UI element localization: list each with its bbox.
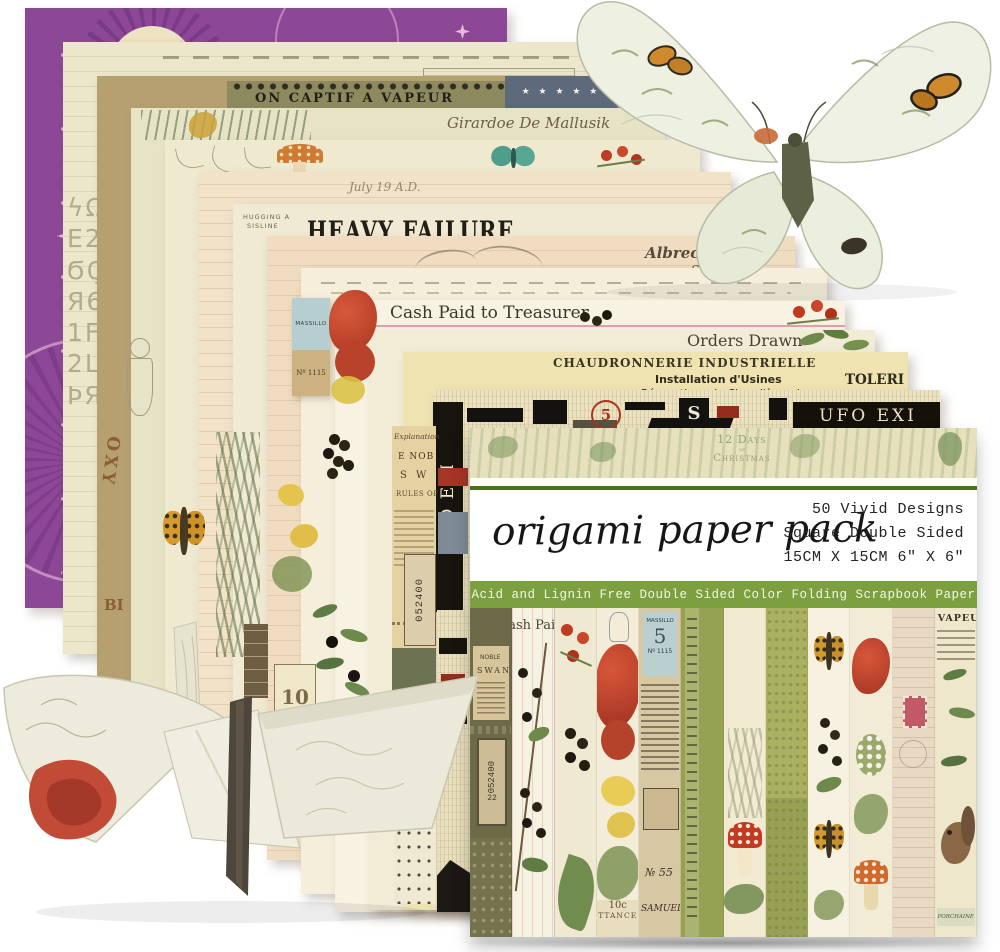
hugging-text-2: SISLINE [247, 222, 279, 230]
cover-strip-green-ledger [681, 608, 723, 937]
moth-icon [814, 820, 846, 868]
samuel-text: SAMUEL [641, 904, 681, 914]
ufo-exi-banner: UFO EXI [793, 402, 940, 429]
origami-crane [0, 610, 480, 926]
nob-text: E NOB [398, 452, 434, 462]
explanation-text: Explanation [394, 432, 439, 441]
cash-top-text: Cash Paid to Treasurer [512, 618, 554, 633]
porchaine-label: PORCHAINE [937, 908, 975, 926]
sw-text: S W [400, 470, 429, 481]
ten-cent-text: 10c [597, 900, 639, 911]
pack-specs: 50 Vivid Designs Square Double Sided 15C… [738, 498, 964, 570]
no1115-text: Nº 1115 [296, 369, 325, 377]
spec-line-3: 15CM X 15CM 6" X 6" [738, 546, 964, 570]
cover-strip-poppy-hydrangea [850, 608, 892, 937]
ufo-exi-text: UFO EXI [819, 406, 917, 426]
swan-text: SWAN [477, 666, 511, 675]
red-five-stamp: 5 [591, 400, 621, 430]
origami-butterfly [552, 0, 1000, 302]
shoe-sketch-icon [244, 145, 271, 170]
s-block: S [679, 398, 709, 428]
blackberry-dots [580, 312, 590, 322]
cover-strip-toadstool-script [724, 608, 766, 937]
shoe-sketch-icon [175, 144, 204, 172]
red-poppy-motif [327, 290, 379, 406]
chaudronnerie-text: CHAUDRONNERIE INDUSTRIELLE [553, 356, 816, 370]
origami-pack-cover: 12 Days of Christmas origami paper pack … [470, 428, 977, 937]
cover-strip-vapeur-squirrel: VAPEU PORCHAINE [935, 608, 977, 937]
pear-motif [938, 432, 962, 466]
strip-no1115-text: Nº 1115 [643, 648, 677, 655]
noble-text: NOBLE [480, 654, 500, 661]
leaf-motif [590, 442, 616, 462]
ttance-text: TTANCE [597, 911, 639, 920]
hugging-text-1: HUGGING A [243, 213, 290, 221]
chain-pattern [231, 82, 551, 91]
postmark-icon [899, 740, 927, 768]
bell-sketch-icon [120, 338, 162, 448]
pine-sprigs [141, 110, 311, 140]
moth-icon [163, 505, 205, 569]
strip-ticket-22: 22 [487, 794, 497, 803]
red-newsprint-block [438, 468, 468, 486]
teal-butterfly-icon [491, 144, 539, 172]
vapeu-text: VAPEU [938, 613, 977, 624]
cover-strip-rosehips [555, 608, 597, 937]
spec-line-2: Square Double Sided [738, 522, 964, 546]
cover-strip-poppy-script: 10c TTANCE [597, 608, 639, 937]
cover-strip-moss [766, 608, 808, 937]
product-photo-scene: ϟΩ26ЦΕ2Ϻ ϬϚϠЯ612 1Ϝ62ЦЏ ϷЯϏ ON CAPTIF A … [0, 0, 1000, 952]
massillo-text: MASSILLO [295, 321, 326, 327]
pack-banner: Acid and Lignin Free Double Sided Color … [470, 581, 977, 608]
pack-shadow [455, 936, 995, 950]
yellow-flowers-motif [272, 476, 320, 598]
red-five-text: 5 [601, 406, 611, 424]
headline-block [533, 400, 567, 424]
postage-stamp-icon [903, 696, 927, 728]
strip-ticket: 052400 22 [477, 738, 507, 826]
cover-strip-stamp-script [893, 608, 935, 937]
blue-newsprint-block [438, 512, 468, 554]
label-gap [470, 478, 977, 486]
moth-icon [814, 632, 846, 680]
rosehip-sprig-icon [787, 300, 841, 330]
cover-strip-berry-ledger: Cash Paid to Treasurer [512, 608, 554, 937]
pink-rule [335, 325, 845, 327]
toadstool-icon [854, 860, 888, 918]
pack-label: origami paper pack 50 Vivid Designs Squa… [470, 490, 977, 578]
spec-line-1: 50 Vivid Designs [738, 498, 964, 522]
orders-text: Orders Drawn [687, 331, 802, 350]
strip-ticket-number: 052400 [487, 761, 497, 793]
headline-block [769, 398, 787, 420]
headline-block [625, 402, 665, 410]
handwriting-squiggle [163, 56, 583, 59]
cover-strip-massillon: MASSILLO 5 Nº 1115 № 55 SAMUEL [639, 608, 681, 937]
installation-text: Installation d'Usines [655, 373, 782, 386]
strip-massillo-text: MASSILLO [643, 612, 677, 624]
blue-massillon-label: MASSILLO Nº 1115 [292, 298, 330, 396]
banner-text: Acid and Lignin Free Double Sided Color … [471, 588, 975, 602]
toleri-text: TOLERI [845, 372, 904, 388]
cover-strips: NOBLE SWAN 052400 22 Cash Paid to Treasu… [470, 608, 977, 937]
rs55-text: № 55 [645, 866, 673, 879]
porchaine-text: PORCHAINE [938, 914, 974, 920]
cash-paid-text: Cash Paid to Treasurer [390, 303, 589, 323]
squirrel-motif [937, 804, 975, 876]
rules-text: RULES OF [396, 490, 439, 498]
pack-top-botanical-band: 12 Days of Christmas [470, 428, 977, 478]
red-block [717, 406, 739, 418]
blackberry-cluster [315, 426, 359, 514]
strip-five-text: 5 [643, 624, 677, 648]
constellation-star-icon [455, 24, 470, 39]
headline-block [467, 408, 523, 422]
cover-strip-moths [808, 608, 850, 937]
twelve-days-text: 12 Days of Christmas [682, 433, 802, 464]
toadstool-icon [728, 822, 762, 882]
shoe-sketch-icon [209, 145, 239, 173]
leaf-motif [488, 436, 518, 458]
captif-text: ON CAPTIF A VAPEUR [255, 91, 454, 106]
july-script: July 19 A.D. [349, 180, 421, 194]
